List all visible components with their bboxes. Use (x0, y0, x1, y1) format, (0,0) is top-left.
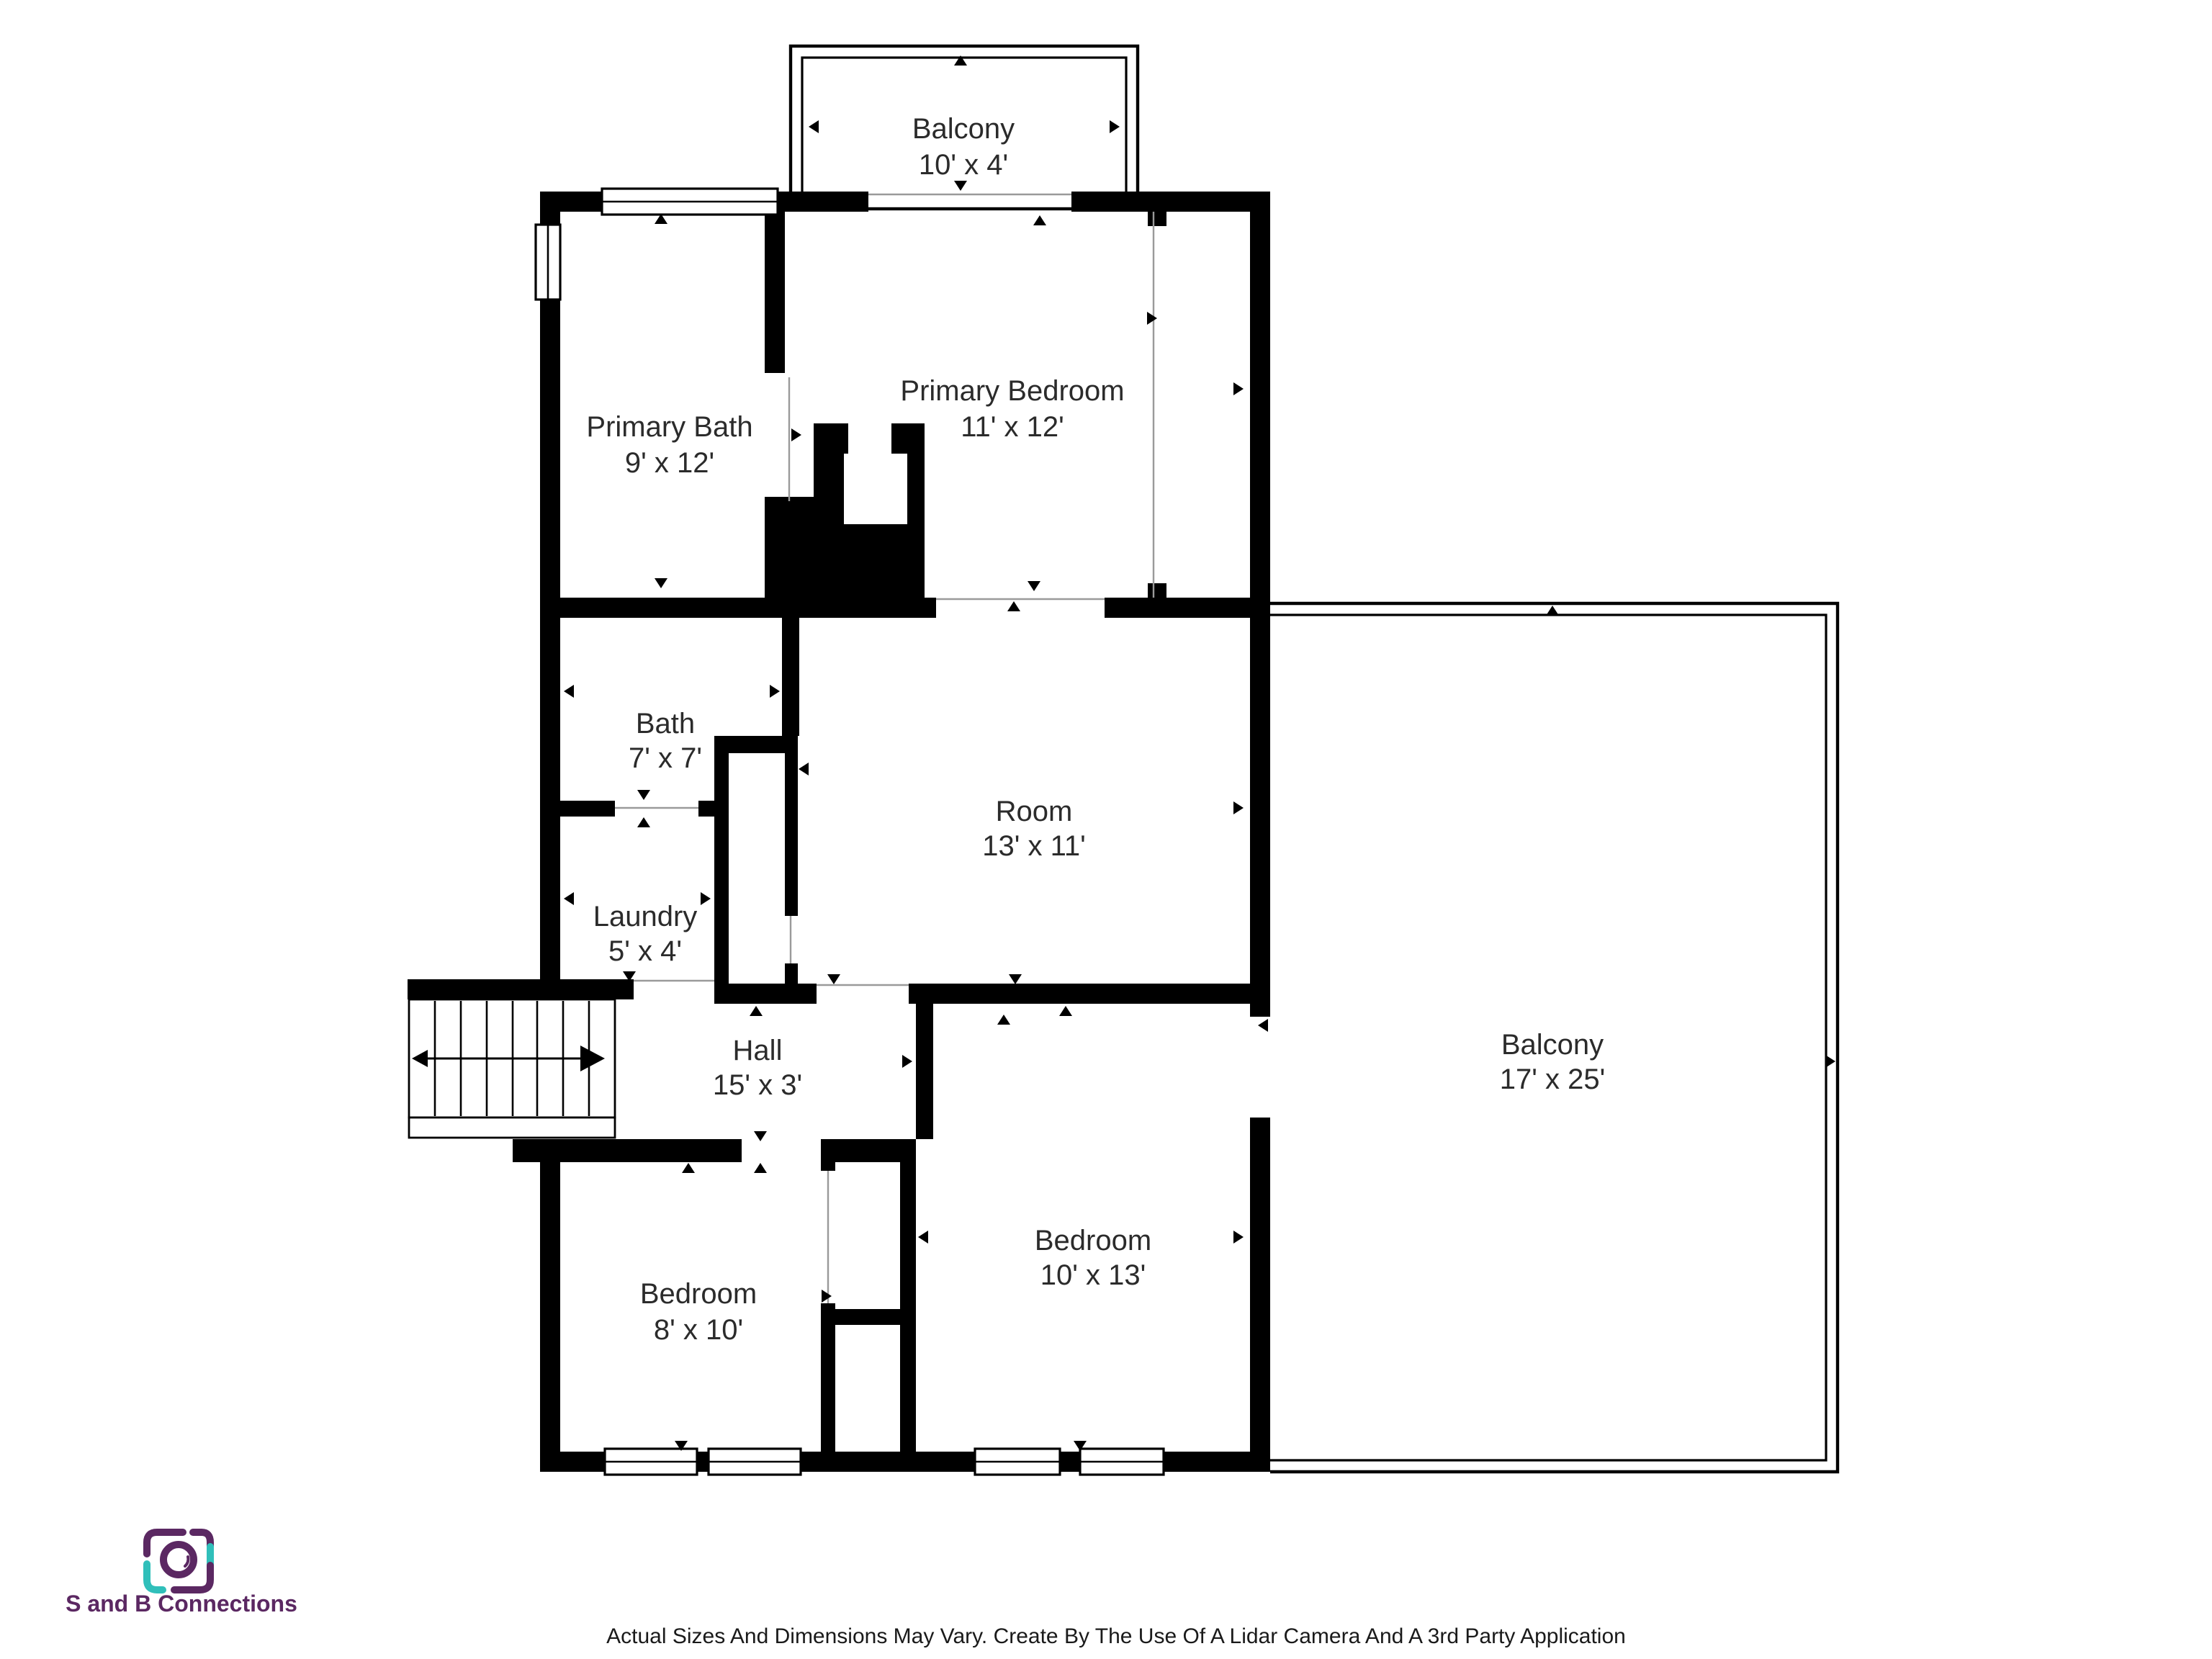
staircase (409, 999, 615, 1138)
svg-text:Laundry: Laundry (593, 901, 698, 932)
svg-text:15' x 3': 15' x 3' (713, 1069, 802, 1101)
wall-segment (1105, 598, 1250, 618)
wall-segment (1071, 192, 1270, 212)
brand-name: S and B Connections (66, 1591, 297, 1617)
window (1080, 1449, 1164, 1475)
svg-text:Bath: Bath (636, 708, 695, 739)
wall-segment (821, 1139, 916, 1162)
wall-segment (1148, 212, 1166, 226)
wall-segment (821, 1162, 835, 1171)
wall-segment (1148, 583, 1166, 598)
svg-text:11' x 12': 11' x 12' (961, 411, 1064, 443)
svg-text:Primary Bath: Primary Bath (586, 411, 752, 443)
wall-segment (540, 192, 560, 999)
wall-segment (765, 212, 785, 373)
svg-text:10' x 4': 10' x 4' (919, 149, 1008, 181)
wall-segment (714, 753, 729, 1004)
svg-text:Bedroom: Bedroom (1035, 1225, 1151, 1256)
wall-segment (1250, 192, 1270, 1017)
svg-text:17' x 25': 17' x 25' (1500, 1064, 1605, 1095)
disclaimer-text: Actual Sizes And Dimensions May Vary. Cr… (606, 1624, 1626, 1648)
wall-segment (785, 753, 798, 916)
window (536, 225, 560, 300)
wall-segment (698, 801, 714, 817)
window (709, 1449, 801, 1475)
wall-segment (916, 1004, 933, 1139)
wall-segment (782, 618, 799, 736)
svg-text:7' x 7': 7' x 7' (629, 742, 702, 774)
svg-text:9' x 12': 9' x 12' (625, 447, 714, 479)
svg-text:Bedroom: Bedroom (640, 1278, 757, 1310)
stair-landing (409, 1118, 615, 1138)
svg-text:Room: Room (996, 796, 1073, 827)
svg-text:13' x 11': 13' x 11' (982, 830, 1086, 862)
svg-text:5' x 4': 5' x 4' (608, 935, 682, 967)
wall-segment (900, 1162, 916, 1452)
svg-text:Primary Bedroom: Primary Bedroom (900, 375, 1124, 407)
plan-background (0, 0, 2212, 1659)
wall-segment (560, 598, 936, 618)
wall-segment (821, 1303, 835, 1452)
wall-segment (1250, 1118, 1270, 1472)
window (605, 1449, 697, 1475)
svg-text:Hall: Hall (733, 1035, 783, 1066)
svg-text:Balcony: Balcony (1501, 1029, 1604, 1061)
wall-segment (909, 984, 1250, 1004)
svg-text:10' x 13': 10' x 13' (1040, 1259, 1146, 1291)
window (975, 1449, 1060, 1475)
wall-segment (408, 979, 634, 999)
svg-text:8' x 10': 8' x 10' (654, 1314, 743, 1346)
floor-plan: Balcony 10' x 4' Primary Bath 9' x 12' P… (0, 0, 2212, 1659)
svg-text:Balcony: Balcony (912, 113, 1015, 145)
wall-segment (714, 736, 798, 753)
window (602, 189, 778, 215)
wall-segment (560, 801, 615, 817)
wall-segment (513, 1139, 742, 1162)
wall-segment (714, 984, 817, 1004)
